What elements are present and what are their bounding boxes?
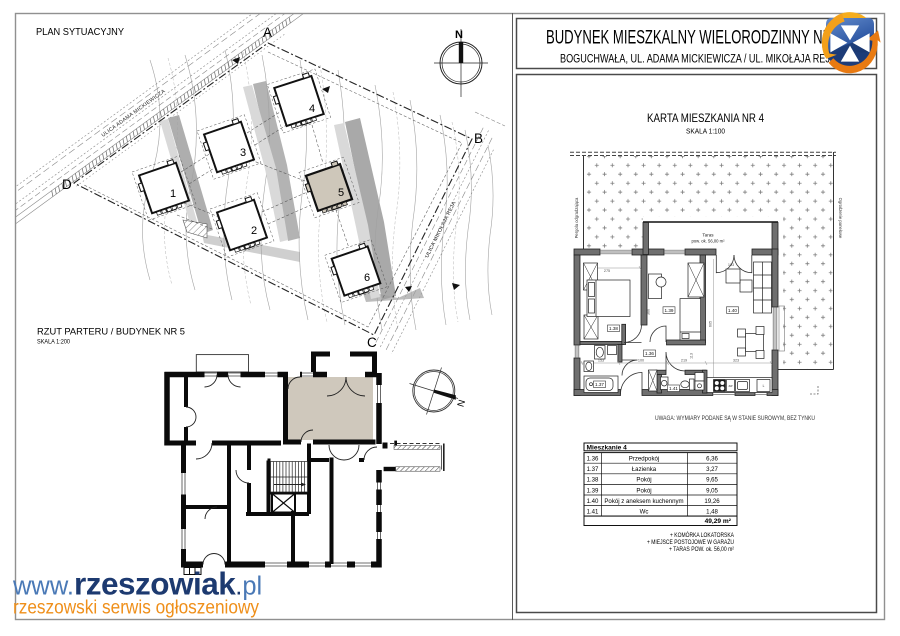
svg-text:Ogrodzenie panelowe: Ogrodzenie panelowe (838, 198, 843, 239)
svg-text:1.40: 1.40 (728, 308, 737, 313)
svg-text:Łazienka: Łazienka (632, 466, 657, 473)
svg-text:1.40: 1.40 (587, 498, 599, 505)
svg-text:+ KOMÓRKA LOKATORSKA: + KOMÓRKA LOKATORSKA (670, 530, 734, 539)
svg-text:pow. ok. 56,00 m²: pow. ok. 56,00 m² (691, 239, 725, 244)
svg-text:N: N (455, 29, 463, 41)
svg-text:L: L (763, 384, 765, 388)
svg-text:Pokój: Pokój (636, 477, 651, 484)
svg-text:RZUT PARTERU / BUDYNEK NR 5: RZUT PARTERU / BUDYNEK NR 5 (37, 327, 185, 338)
svg-text:SKALA 1:200: SKALA 1:200 (37, 339, 70, 346)
svg-text:5: 5 (338, 187, 344, 199)
svg-text:+ TARAS POW. ok. 56,00 m²: + TARAS POW. ok. 56,00 m² (669, 546, 735, 553)
svg-text:193: 193 (728, 263, 734, 267)
svg-text:6: 6 (364, 272, 370, 284)
svg-text:366: 366 (647, 309, 651, 315)
svg-text:Pokój z aneksem kuchennym: Pokój z aneksem kuchennym (604, 498, 683, 505)
svg-text:323: 323 (733, 359, 739, 363)
svg-text:1.39: 1.39 (665, 308, 674, 313)
svg-text:Pokój: Pokój (636, 487, 651, 494)
svg-text:rzeszowski serwis ogłoszeniowy: rzeszowski serwis ogłoszeniowy (13, 598, 259, 619)
svg-text:KARTA MIESZKANIA NR 4: KARTA MIESZKANIA NR 4 (647, 113, 765, 125)
svg-text:1.37: 1.37 (595, 382, 604, 387)
svg-text:1,48: 1,48 (706, 509, 718, 516)
svg-text:A: A (263, 25, 272, 40)
svg-text:BUDYNEK MIESZKALNY WIELORODZIN: BUDYNEK MIESZKALNY WIELORODZINNY NR 5 (546, 28, 843, 49)
svg-text:1.39: 1.39 (587, 487, 599, 494)
svg-text:B: B (474, 131, 483, 146)
svg-text:3,27: 3,27 (706, 466, 718, 473)
svg-text:www.rzeszowiak.pl: www.rzeszowiak.pl (12, 566, 262, 602)
svg-text:+ MIEJSCE POSTOJOWE W GARAŻU: + MIEJSCE POSTOJOWE W GARAŻU (647, 537, 734, 546)
svg-text:2: 2 (251, 225, 257, 237)
svg-text:PLAN SYTUACYJNY: PLAN SYTUACYJNY (36, 26, 124, 38)
svg-text:Wc: Wc (640, 509, 649, 516)
svg-text:113: 113 (690, 353, 694, 359)
svg-text:100: 100 (638, 359, 644, 363)
svg-text:SKALA 1:100: SKALA 1:100 (686, 127, 725, 136)
svg-text:zw: zw (729, 384, 734, 388)
svg-text:1.38: 1.38 (587, 477, 599, 484)
svg-text:275: 275 (604, 269, 610, 273)
svg-text:19,26: 19,26 (704, 498, 720, 505)
svg-text:219: 219 (681, 359, 687, 363)
svg-text:C: C (367, 335, 377, 350)
svg-text:1: 1 (170, 188, 176, 200)
svg-text:49,29 m²: 49,29 m² (705, 518, 732, 525)
svg-text:Przedpokój: Przedpokój (629, 456, 660, 463)
svg-text:Taras: Taras (702, 233, 714, 238)
svg-text:605: 605 (709, 321, 713, 327)
svg-text:4: 4 (309, 103, 315, 115)
svg-text:3: 3 (240, 147, 246, 159)
svg-text:9,65: 9,65 (706, 477, 718, 484)
svg-text:1.36: 1.36 (645, 351, 654, 356)
svg-text:1.36: 1.36 (587, 456, 599, 463)
svg-text:ULICA MIKOŁAJA REJA: ULICA MIKOŁAJA REJA (424, 200, 457, 259)
svg-text:Mieszkanie 4: Mieszkanie 4 (587, 444, 628, 451)
svg-text:Pergola odgradzająca: Pergola odgradzająca (574, 197, 579, 238)
svg-text:6,36: 6,36 (706, 456, 718, 463)
svg-text:1.41: 1.41 (669, 386, 678, 391)
svg-text:N: N (454, 398, 467, 408)
svg-text:1.38: 1.38 (609, 326, 618, 331)
svg-text:BOGUCHWAŁA, UL. ADAMA MICKIEWI: BOGUCHWAŁA, UL. ADAMA MICKIEWICZA / UL. … (560, 52, 837, 66)
svg-text:D: D (62, 177, 72, 192)
svg-text:9,05: 9,05 (706, 487, 718, 494)
svg-text:1.37: 1.37 (587, 466, 599, 473)
svg-text:1.41: 1.41 (587, 509, 599, 516)
svg-text:UWAGA: WYMIARY PODANE SĄ W STA: UWAGA: WYMIARY PODANE SĄ W STANIE SUROWY… (655, 415, 815, 422)
